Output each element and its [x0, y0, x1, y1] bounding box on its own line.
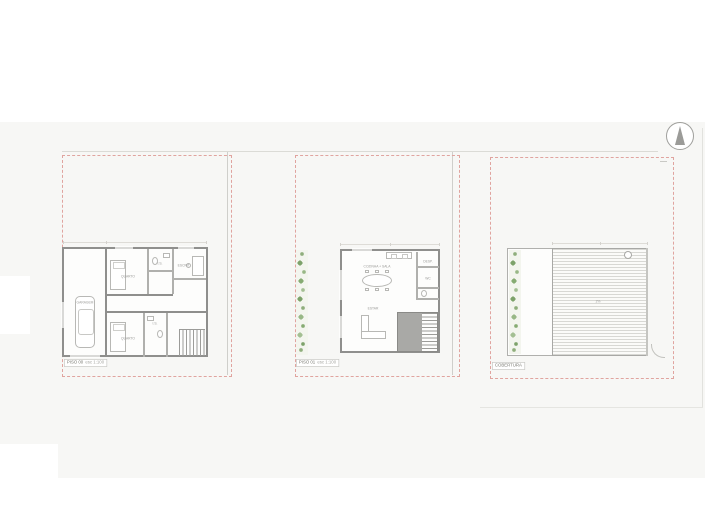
neighbor-cutout [0, 276, 30, 334]
window [339, 316, 343, 338]
dim-tick [390, 243, 391, 246]
chair [365, 270, 369, 273]
room-label-office: ESCRIT. [165, 264, 204, 267]
dim-tick [206, 241, 207, 244]
stairs [422, 313, 437, 351]
wall [105, 311, 206, 313]
wall [172, 278, 206, 280]
dining-table [362, 274, 392, 287]
sofa [361, 331, 386, 339]
stair-void [398, 313, 422, 351]
stairs [179, 329, 205, 356]
pillow [113, 324, 125, 331]
room-label-wc: WC [409, 277, 448, 280]
parcel-bottom-line [480, 407, 703, 408]
neighbor-cutout [0, 444, 58, 478]
room-label-bedroom1: QUARTO [109, 275, 148, 278]
kitchen-counter [386, 252, 412, 259]
plan-title-piso-00: PISO 00esc 1:100 [64, 359, 107, 367]
window [61, 302, 65, 328]
chair [385, 270, 389, 273]
plan-title-text: COBERTURA [495, 363, 522, 367]
roof-edge [646, 248, 648, 356]
wall [416, 287, 439, 289]
plan-title-piso-01: PISO 01esc 1:100 [296, 359, 339, 367]
window [178, 246, 194, 250]
plan-scale-text: esc 1:100 [317, 360, 336, 364]
dim-tick [106, 241, 107, 244]
slope-annotation: 2% [579, 300, 618, 303]
chair [365, 288, 369, 291]
plan-title-text: PISO 01 [299, 360, 315, 364]
chair [385, 288, 389, 291]
wall [147, 249, 149, 294]
dim-tick [600, 242, 601, 245]
window [115, 246, 133, 250]
wall [416, 252, 418, 298]
wall [105, 294, 173, 296]
room-label-bath2: I.S. [136, 322, 175, 325]
architectural-sheet: GARAGEM QUARTO I.S. ESCRIT. QUARTO I.S. … [0, 0, 705, 528]
planting-strip [509, 250, 521, 354]
parcel-top-line [62, 151, 658, 152]
sink [163, 253, 170, 258]
cooktop [391, 254, 397, 259]
chair [375, 270, 379, 273]
wall [166, 313, 168, 357]
roof-vent [624, 251, 632, 259]
dim-tick [552, 242, 553, 245]
toilet [157, 330, 163, 338]
room-label-living: ESTAR [354, 307, 393, 310]
car-roof [78, 309, 94, 335]
pillow [113, 262, 125, 269]
sheet-edge-line [702, 128, 703, 408]
wall [416, 298, 439, 300]
room-label-bedroom2: QUARTO [109, 337, 148, 340]
dim-tick [63, 241, 64, 244]
dimension-line [63, 242, 207, 243]
dim-tick [647, 242, 648, 245]
dim-tick [340, 243, 341, 246]
sink [402, 254, 408, 259]
room-label-garage: GARAGEM [66, 301, 105, 304]
room-label-pantry: DESP. [409, 260, 448, 263]
plan-title-cobertura: COBERTURA [492, 362, 525, 370]
north-arrow-icon [675, 126, 685, 145]
plan-title-text: PISO 00 [67, 360, 83, 364]
wall [416, 266, 439, 268]
chair [375, 288, 379, 291]
toilet [421, 290, 427, 297]
wall [105, 247, 107, 357]
room-label-kitchen-dining: COZINHA + SALA [358, 265, 397, 268]
garage-door [70, 354, 100, 358]
window [339, 270, 343, 300]
wall [172, 249, 174, 294]
sink [147, 316, 154, 321]
planting-strip [296, 250, 308, 355]
dim-tick [439, 243, 440, 246]
plan-scale-text: esc 1:100 [85, 360, 104, 364]
wall [143, 313, 145, 357]
north-arrow-tick [660, 161, 667, 162]
stairwell [397, 312, 438, 352]
north-arrow [666, 122, 694, 150]
wall [147, 270, 173, 272]
window [352, 248, 372, 252]
